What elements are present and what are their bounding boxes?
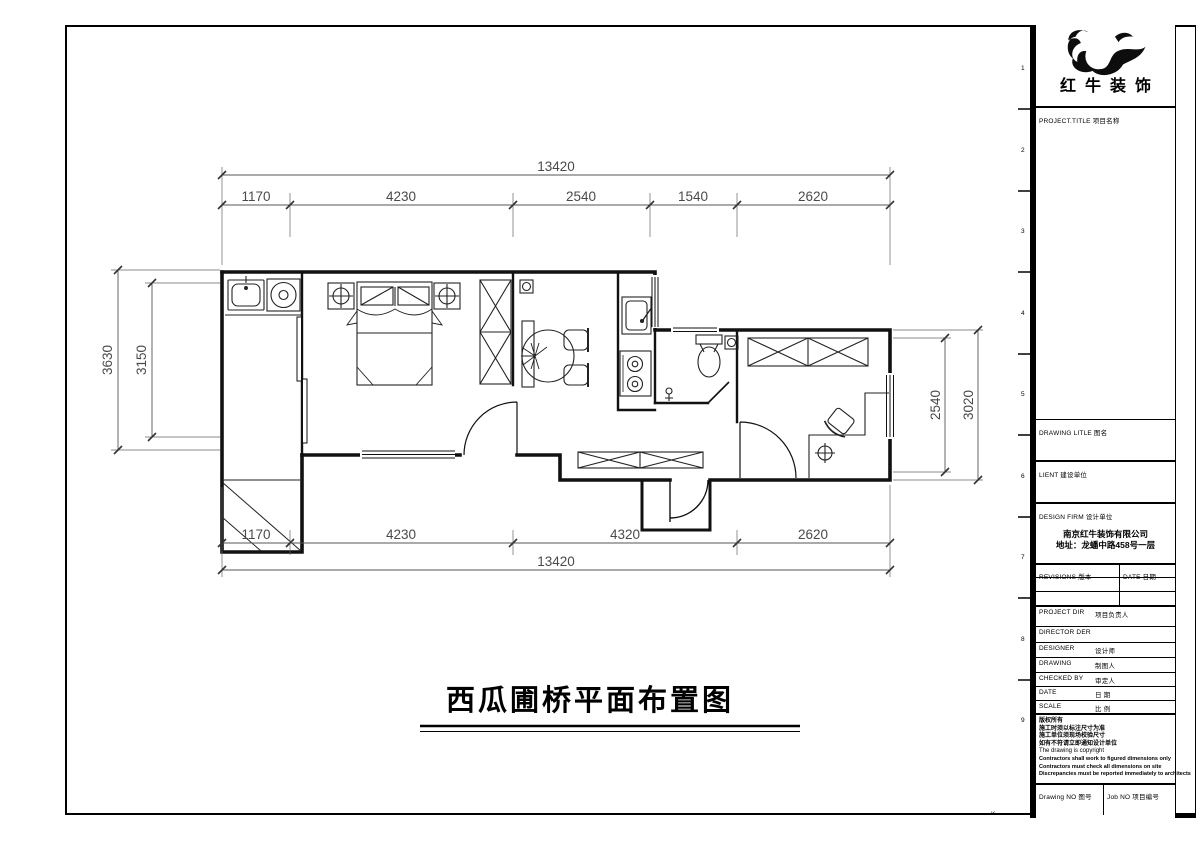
checked-by-row: CHECKED BY 审定人	[1036, 673, 1175, 687]
svg-text:2: 2	[1021, 147, 1025, 154]
dimension-labels: 13420 1170 4230 2540 1540 2620 1170 4230…	[100, 159, 976, 569]
balcony-sliding-door	[297, 317, 307, 443]
designer-row: DESIGNER 设计师	[1036, 643, 1175, 658]
svg-text:1: 1	[1021, 65, 1025, 72]
dim-top-seg-2: 2540	[566, 189, 596, 204]
dining-chair-1	[564, 328, 588, 352]
drawing-title-cell: DRAWING LITLE 图名	[1036, 420, 1175, 462]
bedroom-door	[464, 402, 517, 455]
walls	[222, 272, 890, 552]
dim-bottom-total: 13420	[537, 554, 575, 569]
ceiling-lamp-icon	[815, 443, 835, 463]
dim-right-inner: 2540	[928, 390, 943, 420]
dim-bottom-seg-0: 1170	[241, 527, 270, 542]
project-dir-row: PROJECT DIR 项目负责人	[1036, 607, 1175, 627]
director-row: DIRECTOR DER	[1036, 627, 1175, 643]
project-title-label: PROJECT.TITLE 项目名称	[1039, 118, 1120, 125]
partitions	[302, 272, 737, 455]
revisions-header: REVISIONS 版本 DATE 日期	[1036, 565, 1175, 578]
dim-bottom-seg-2: 4320	[610, 527, 640, 542]
entry-door	[670, 480, 708, 522]
shoe-cabinet	[578, 452, 703, 468]
drawing-row: DRAWING 制图人	[1036, 658, 1175, 673]
design-firm-address: 地址：龙蟠中路458号一层	[1039, 540, 1172, 550]
furniture	[222, 276, 889, 551]
design-firm-name: 南京红牛装饰有限公司	[1039, 528, 1172, 540]
study-door	[740, 422, 796, 478]
drawing-no-label: Drawing NO 图号	[1039, 794, 1092, 801]
bull-logo-icon	[1060, 26, 1152, 78]
svg-text:7: 7	[1021, 554, 1025, 561]
project-title-cell: PROJECT.TITLE 项目名称	[1036, 108, 1175, 420]
sheet-corner-mark: K	[991, 811, 996, 815]
svg-text:9: 9	[1021, 717, 1025, 724]
svg-text:5: 5	[1021, 391, 1025, 398]
extension-lines	[111, 167, 983, 577]
design-firm-label: DESIGN FIRM 设计单位	[1039, 514, 1113, 521]
desk	[809, 393, 889, 478]
study-wardrobe	[748, 338, 868, 366]
dim-top-seg-4: 2620	[798, 189, 828, 204]
revisions-row-empty-1	[1036, 578, 1175, 592]
bathroom-door	[708, 382, 729, 403]
drawing-title-label: DRAWING LITLE 图名	[1039, 430, 1107, 437]
dim-bottom-seg-3: 2620	[798, 527, 828, 542]
dim-top-seg-3: 1540	[678, 189, 708, 204]
revisions-row-empty-2	[1036, 592, 1175, 607]
floor-plan: 13420 1170 4230 2540 1540 2620 1170 4230…	[65, 25, 1030, 815]
washing-machine-icon	[267, 279, 300, 311]
dim-top-seg-0: 1170	[241, 189, 270, 204]
plan-title-group: 西瓜圃桥平面布置图	[420, 684, 800, 732]
svg-text:6: 6	[1021, 473, 1025, 480]
dim-top-seg-1: 4230	[386, 189, 416, 204]
dim-left-inner: 3150	[134, 345, 149, 375]
sheet-grid-numbers: 1 2 3 4 5 6 7 8 9 K	[991, 65, 1030, 815]
design-firm-cell: DESIGN FIRM 设计单位 南京红牛装饰有限公司 地址：龙蟠中路458号一…	[1036, 504, 1175, 565]
nightstand-right	[434, 283, 460, 309]
dining-chair-2	[564, 363, 588, 387]
drawing-no-cell: Drawing NO 图号 Job NO 项目编号	[1036, 785, 1175, 815]
dim-bottom-seg-1: 4230	[386, 527, 416, 542]
laundry-sink	[228, 276, 264, 310]
dim-top-total: 13420	[537, 159, 575, 174]
copyright-block: 版权所有 施工时须以标注尺寸为准 施工单位须现场校验尺寸 如有不符请立即通知设计…	[1036, 715, 1175, 785]
dimensions: 13420 1170 4230 2540 1540 2620 1170 4230…	[100, 159, 983, 577]
stove	[620, 351, 651, 396]
bed	[347, 282, 442, 385]
client-cell: LIENT 建设单位	[1036, 462, 1175, 504]
nightstand-left	[328, 283, 354, 309]
title-block: 红牛装饰 PROJECT.TITLE 项目名称 DRAWING LITLE 图名…	[1030, 25, 1196, 818]
job-no-label: Job NO 项目编号	[1107, 794, 1159, 801]
company-logo-name: 红牛装饰	[1060, 78, 1160, 95]
plan-title: 西瓜圃桥平面布置图	[446, 684, 734, 717]
dimension-ticks	[114, 171, 982, 574]
dim-left-outer: 3630	[100, 345, 115, 375]
scale-row: SCALE 比 例	[1036, 701, 1175, 715]
svg-text:4: 4	[1021, 310, 1025, 317]
client-label: LIENT 建设单位	[1039, 472, 1087, 479]
svg-text:3: 3	[1021, 228, 1025, 235]
svg-text:8: 8	[1021, 636, 1025, 643]
windows	[297, 275, 896, 460]
toilet-icon	[696, 335, 722, 377]
kitchen-sink	[622, 297, 652, 334]
drawing-sheet: { "sheet": { "grid_numbers": ["1","2","3…	[0, 0, 1200, 844]
dim-right-outer: 3020	[961, 390, 976, 420]
floor-drain-icon	[665, 388, 673, 401]
company-logo-cell: 红牛装饰	[1036, 25, 1175, 108]
bathroom-window	[671, 326, 719, 334]
date-row: DATE 日 期	[1036, 687, 1175, 701]
gas-meter-icon	[520, 280, 533, 293]
bedroom-wardrobe	[480, 280, 511, 384]
